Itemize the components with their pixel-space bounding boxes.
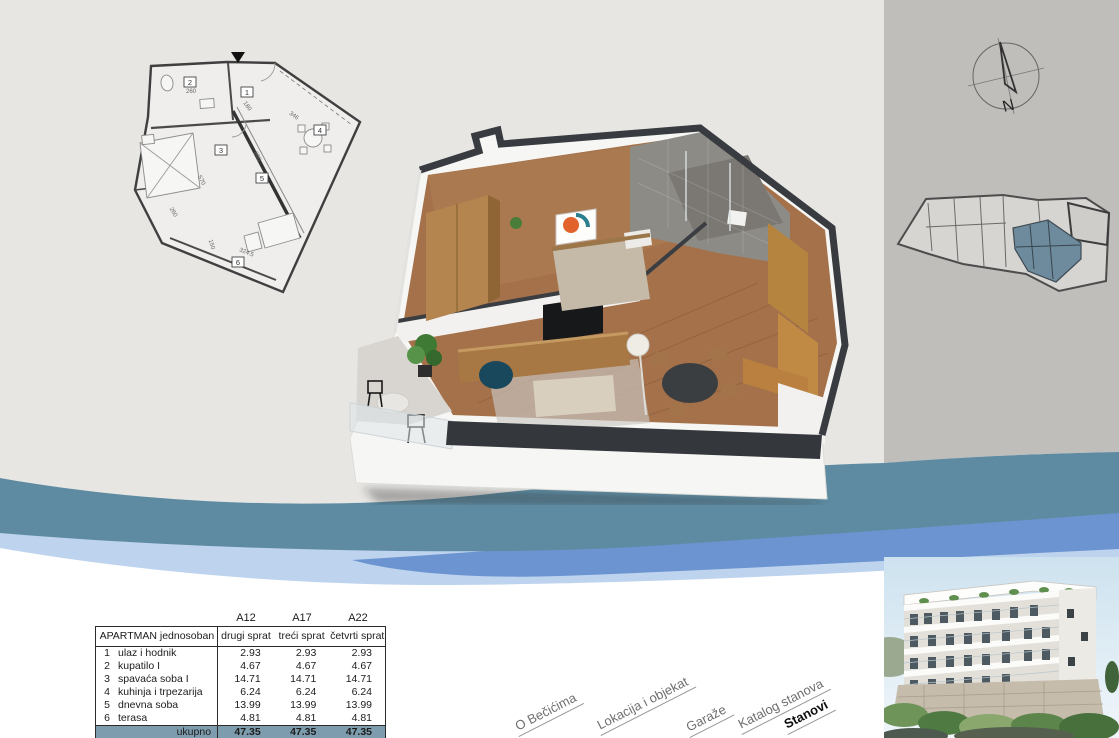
table-row: 1ulaz i hodnik 2.93 2.93 2.93 [96,647,385,660]
area-value: 14.71 [274,674,330,685]
unit-column-a22: A22 [330,613,386,624]
svg-text:6: 6 [236,258,240,267]
area-value: 2.93 [329,648,385,659]
floor-plan-2d: 1 2 3 4 5 6 260 180 346 570 600 260 150 … [108,33,370,305]
svg-text:260: 260 [186,89,197,95]
apartment-area-table: A12 A17 A22 APARTMAN jednosoban drugi sp… [95,611,386,738]
row-number: 6 [96,713,118,724]
table-total-row: ukupno 47.35 47.35 47.35 [96,725,385,738]
area-value: 4.67 [218,661,274,672]
row-number: 3 [96,674,118,685]
room-name: kuhinja i trpezarija [118,687,217,698]
area-value: 14.71 [218,674,274,685]
total-value: 47.35 [274,727,330,738]
svg-text:2: 2 [188,78,192,87]
apartment-3d-render [338,103,862,505]
total-label: ukupno [96,726,218,738]
row-number: 2 [96,661,118,672]
area-value: 13.99 [329,700,385,711]
area-value: 4.81 [218,713,274,724]
row-number: 5 [96,700,118,711]
floor-header: četvrti sprat [329,631,385,642]
area-value: 2.93 [274,648,330,659]
north-compass-icon: N [958,28,1054,124]
area-value: 4.67 [274,661,330,672]
table-row: 2kupatilo I 4.67 4.67 4.67 [96,660,385,673]
unit-column-a12: A12 [218,613,274,624]
table-box: APARTMAN jednosoban drugi sprat treći sp… [95,626,386,738]
svg-text:3: 3 [219,146,223,155]
svg-text:5: 5 [260,174,264,183]
svg-text:1: 1 [245,88,249,97]
total-value: 47.35 [218,727,274,738]
building-photo [884,557,1119,738]
building-key-plan [888,183,1115,305]
room-name: terasa [118,713,217,724]
table-row: 3spavaća soba I 14.71 14.71 14.71 [96,673,385,686]
room-name: kupatilo I [118,661,217,672]
area-value: 4.81 [329,713,385,724]
area-value: 13.99 [218,700,274,711]
catalog-page: 1 2 3 4 5 6 260 180 346 570 600 260 150 … [0,0,1119,738]
svg-text:4: 4 [318,126,322,135]
balcony-area [350,334,452,449]
room-name: spavaća soba I [118,674,217,685]
unit-column-a17: A17 [274,613,330,624]
room-name: ulaz i hodnik [118,648,217,659]
row-number: 4 [96,687,118,698]
table-title: APARTMAN jednosoban [96,627,218,646]
area-value: 14.71 [329,674,385,685]
area-value: 13.99 [274,700,330,711]
floor-header: drugi sprat [218,631,274,642]
area-value: 2.93 [218,648,274,659]
area-value: 4.67 [329,661,385,672]
room-name: dnevna soba [118,700,217,711]
table-row: 6terasa 4.81 4.81 4.81 [96,712,385,725]
table-row: 5dnevna soba 13.99 13.99 13.99 [96,699,385,712]
row-number: 1 [96,648,118,659]
area-value: 6.24 [329,687,385,698]
total-value: 47.35 [329,727,385,738]
table-header-row: APARTMAN jednosoban drugi sprat treći sp… [96,627,385,647]
floor-header: treći sprat [274,631,330,642]
area-value: 6.24 [274,687,330,698]
svg-text:N: N [1001,97,1016,116]
table-row: 4kuhinja i trpezarija 6.24 6.24 6.24 [96,686,385,699]
area-value: 6.24 [218,687,274,698]
area-value: 4.81 [274,713,330,724]
unit-columns-row: A12 A17 A22 [95,611,386,626]
